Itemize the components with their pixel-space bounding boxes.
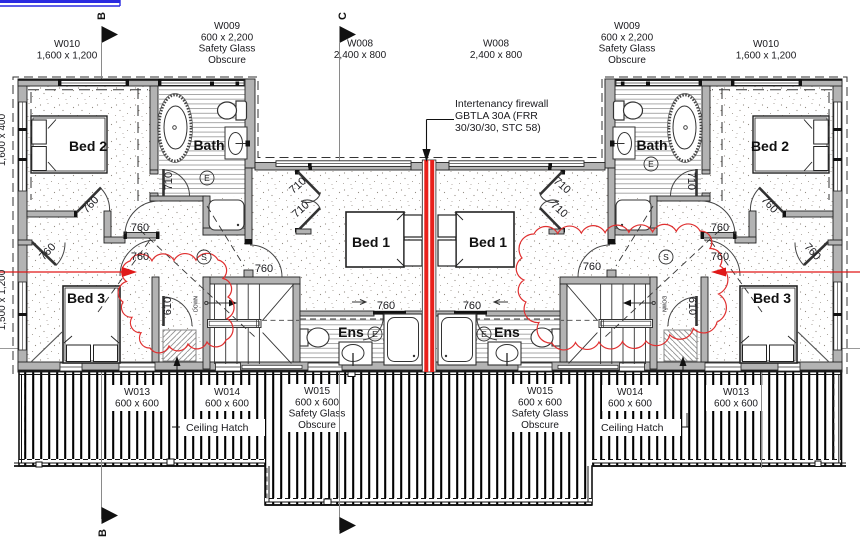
svg-text:S: S	[201, 252, 207, 262]
svg-text:B: B	[96, 12, 108, 20]
svg-text:W009: W009	[614, 21, 641, 32]
svg-text:710: 710	[163, 172, 175, 190]
svg-text:760: 760	[711, 251, 729, 263]
svg-text:Safety Glass: Safety Glass	[512, 409, 569, 420]
svg-text:760: 760	[255, 263, 273, 275]
svg-text:W015: W015	[527, 386, 554, 397]
svg-text:B: B	[97, 529, 109, 537]
svg-text:S: S	[663, 252, 669, 262]
svg-text:760: 760	[131, 251, 149, 263]
svg-text:Ens: Ens	[338, 324, 364, 340]
svg-text:E: E	[481, 329, 487, 339]
svg-text:600 x 600: 600 x 600	[714, 398, 758, 409]
svg-text:30/30/30, STC 58): 30/30/30, STC 58)	[455, 122, 541, 134]
svg-text:600 x 2,200: 600 x 2,200	[201, 32, 254, 43]
svg-text:Obscure: Obscure	[298, 420, 336, 431]
svg-text:Bath: Bath	[193, 137, 224, 153]
svg-text:760: 760	[711, 222, 729, 234]
svg-text:W015: W015	[304, 386, 331, 397]
svg-text:Obscure: Obscure	[208, 55, 246, 66]
svg-text:1,600 x 400: 1,600 x 400	[0, 113, 8, 166]
svg-text:Bed 3: Bed 3	[67, 290, 105, 306]
svg-text:W008: W008	[483, 39, 510, 50]
svg-text:Safety Glass: Safety Glass	[599, 44, 656, 55]
svg-text:600 x 600: 600 x 600	[295, 397, 339, 408]
svg-text:760: 760	[583, 261, 601, 273]
svg-text:DOWN: DOWN	[661, 296, 667, 312]
svg-text:Bed 2: Bed 2	[69, 138, 107, 154]
svg-text:W010: W010	[753, 39, 780, 50]
svg-text:Ceiling Hatch: Ceiling Hatch	[601, 422, 664, 434]
svg-text:610: 610	[162, 297, 174, 315]
svg-text:600 x 600: 600 x 600	[518, 397, 562, 408]
svg-text:Bed 1: Bed 1	[352, 234, 390, 250]
svg-text:610: 610	[686, 297, 698, 315]
svg-text:E: E	[372, 329, 378, 339]
svg-text:Obscure: Obscure	[521, 420, 559, 431]
svg-text:Safety Glass: Safety Glass	[289, 409, 346, 420]
svg-text:710: 710	[685, 172, 697, 190]
svg-text:Intertenancy firewall: Intertenancy firewall	[455, 98, 548, 110]
svg-text:Bed 2: Bed 2	[751, 138, 789, 154]
svg-text:Ens: Ens	[494, 324, 520, 340]
svg-text:760: 760	[463, 300, 481, 312]
svg-text:1,600 x 1,200: 1,600 x 1,200	[736, 51, 797, 62]
svg-text:Bath: Bath	[636, 137, 667, 153]
svg-text:E: E	[204, 173, 210, 183]
svg-text:Bed 1: Bed 1	[469, 234, 507, 250]
svg-text:Obscure: Obscure	[608, 55, 646, 66]
svg-text:W013: W013	[723, 387, 750, 398]
svg-text:1,500 x 1,200: 1,500 x 1,200	[0, 269, 8, 330]
svg-text:W010: W010	[54, 39, 81, 50]
svg-text:760: 760	[131, 222, 149, 234]
svg-text:2,400 x 800: 2,400 x 800	[334, 50, 387, 61]
svg-text:Bed 3: Bed 3	[753, 290, 791, 306]
svg-text:W009: W009	[214, 21, 241, 32]
svg-text:600 x 600: 600 x 600	[608, 398, 652, 409]
svg-text:760: 760	[377, 300, 395, 312]
svg-text:W008: W008	[347, 39, 374, 50]
svg-text:W013: W013	[124, 387, 151, 398]
svg-text:600 x 600: 600 x 600	[115, 398, 159, 409]
svg-text:1,600 x 1,200: 1,600 x 1,200	[37, 51, 98, 62]
svg-text:DOWN: DOWN	[194, 296, 200, 312]
svg-text:2,400 x 800: 2,400 x 800	[470, 50, 523, 61]
svg-text:W014: W014	[617, 387, 644, 398]
svg-text:Ceiling Hatch: Ceiling Hatch	[186, 422, 249, 434]
svg-text:600 x 2,200: 600 x 2,200	[601, 32, 654, 43]
svg-text:W014: W014	[214, 387, 241, 398]
svg-text:Safety Glass: Safety Glass	[199, 44, 256, 55]
svg-text:E: E	[648, 159, 654, 169]
svg-text:600 x 600: 600 x 600	[205, 398, 249, 409]
svg-text:C: C	[337, 12, 349, 20]
svg-text:GBTLA 30A (FRR: GBTLA 30A (FRR	[455, 110, 538, 122]
